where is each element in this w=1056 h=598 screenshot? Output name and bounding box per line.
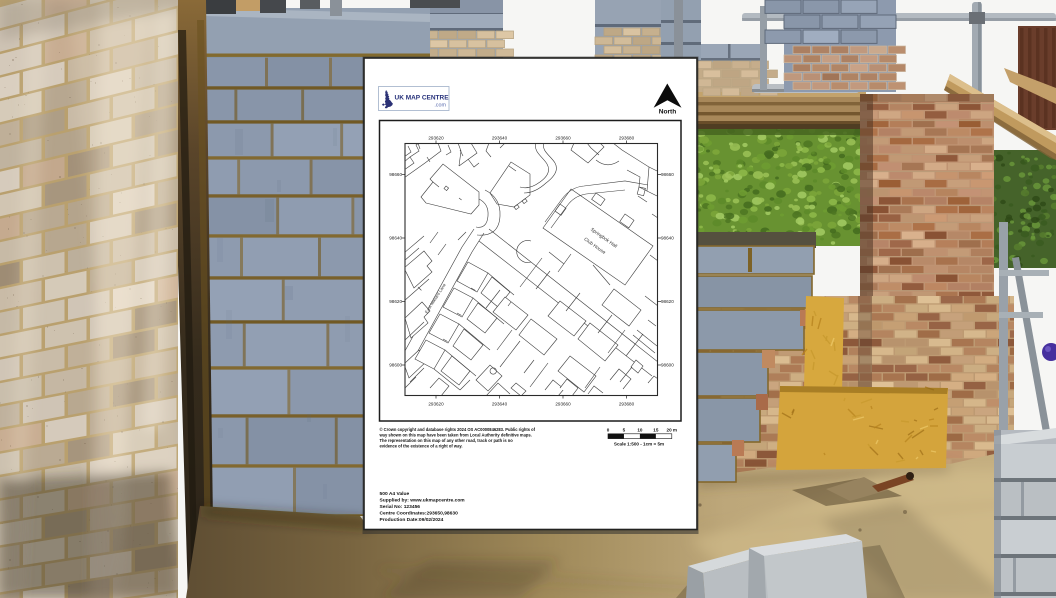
- svg-text:293620: 293620: [428, 136, 444, 141]
- svg-text:293640: 293640: [492, 402, 508, 407]
- svg-text:98660: 98660: [661, 172, 674, 177]
- svg-text:98660: 98660: [389, 172, 402, 177]
- svg-text:Serial No: 123456: Serial No: 123456: [380, 504, 421, 510]
- svg-text:North: North: [659, 109, 677, 116]
- svg-text:98600: 98600: [661, 363, 674, 368]
- svg-text:98620: 98620: [661, 299, 674, 304]
- svg-text:98600: 98600: [389, 363, 402, 368]
- svg-text:20 m: 20 m: [667, 428, 677, 433]
- svg-text:293640: 293640: [492, 136, 508, 141]
- svg-text:98620: 98620: [389, 299, 402, 304]
- svg-text:293660: 293660: [555, 136, 571, 141]
- svg-text:98640: 98640: [389, 236, 402, 241]
- svg-text:293680: 293680: [619, 402, 635, 407]
- svg-text:293680: 293680: [619, 136, 635, 141]
- svg-text:evidence of the existence of a: evidence of the existence of a right of …: [380, 444, 463, 449]
- svg-text:Production Date:09/02/2024: Production Date:09/02/2024: [380, 517, 444, 523]
- svg-text:293660: 293660: [555, 402, 571, 407]
- svg-text:© Crown copyright and database: © Crown copyright and database rights 20…: [380, 427, 536, 432]
- svg-text:15: 15: [653, 428, 659, 433]
- svg-text:way shown on this map have bee: way shown on this map have been taken fr…: [379, 433, 532, 438]
- svg-text:UK MAP CENTRE: UK MAP CENTRE: [395, 95, 450, 102]
- svg-text:98640: 98640: [661, 236, 674, 241]
- svg-text:The representation on this map: The representation on this map of any ot…: [380, 438, 514, 443]
- svg-text:500 A4 Value: 500 A4 Value: [380, 491, 410, 497]
- svg-text:Scale 1:500 - 1cm = 5m: Scale 1:500 - 1cm = 5m: [614, 442, 664, 447]
- svg-text:5: 5: [623, 428, 626, 433]
- svg-text:.com: .com: [434, 103, 446, 109]
- svg-text:293620: 293620: [428, 402, 444, 407]
- svg-text:10: 10: [637, 428, 643, 433]
- svg-text:Supplied by: www.ukmapcentre.c: Supplied by: www.ukmapcentre.com: [380, 498, 466, 504]
- svg-text:Centre Coordinates:293650,9863: Centre Coordinates:293650,98630: [380, 511, 459, 517]
- svg-text:0: 0: [607, 428, 610, 433]
